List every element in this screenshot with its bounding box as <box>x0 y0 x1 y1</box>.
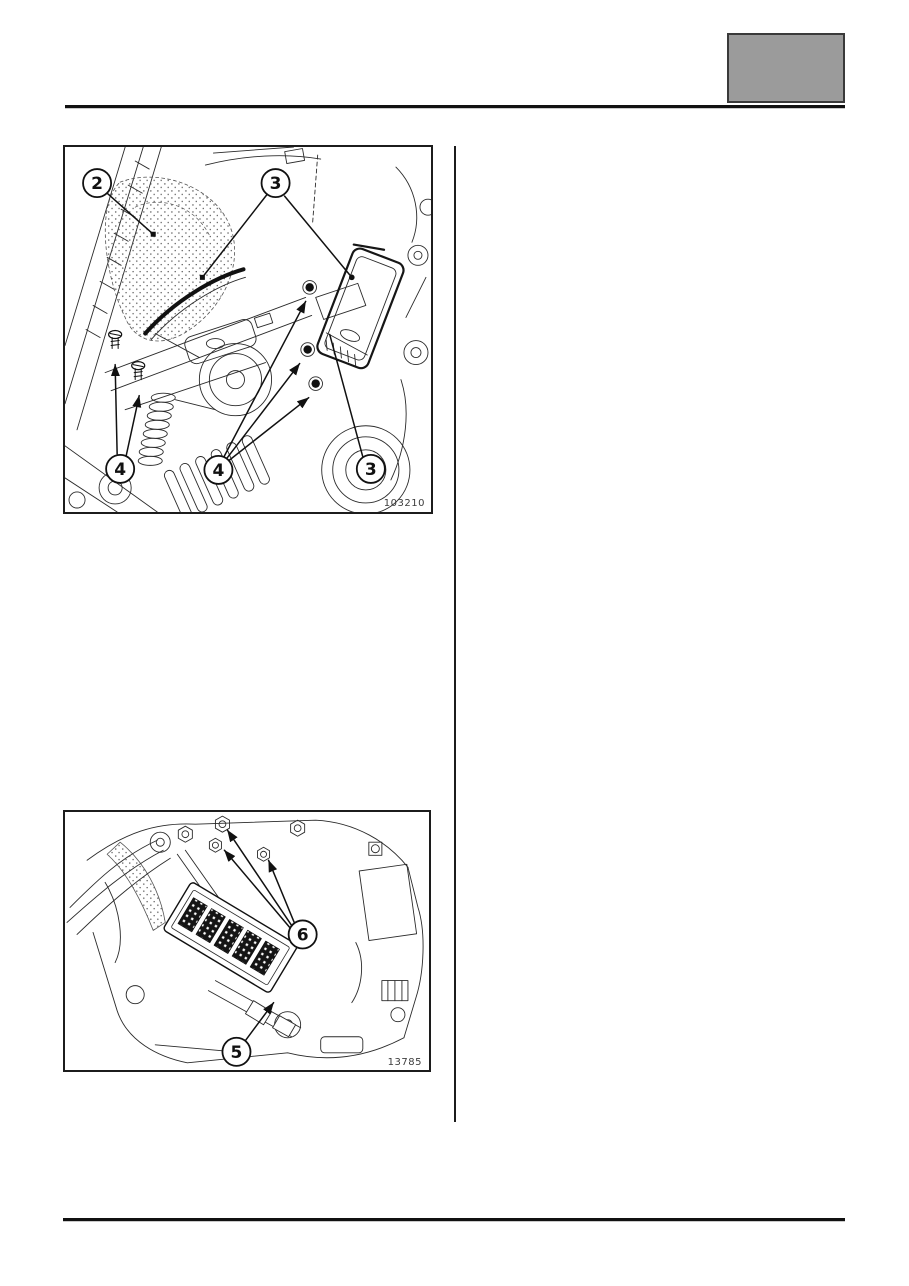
figure-engine-compartment: 2 3 3 4 <box>63 145 433 514</box>
callout-3-bottom: 3 <box>330 335 385 483</box>
section-tab-box <box>727 33 845 103</box>
corrugated-hose-art <box>138 393 175 465</box>
engine-illustration: 2 3 3 4 <box>65 147 431 512</box>
top-rule <box>65 105 845 108</box>
callout-4-label: 4 <box>212 461 224 481</box>
ecu-box-art <box>313 239 408 371</box>
bottom-rule <box>63 1218 845 1221</box>
screw-icon <box>109 331 122 349</box>
pulley-art <box>155 334 410 512</box>
callout-4-label: 4 <box>114 460 126 480</box>
leader-endpoint <box>349 275 355 281</box>
fuse-plate-art <box>163 881 299 993</box>
engine-mount-art <box>391 167 431 480</box>
column-divider <box>454 146 456 1122</box>
callout-3-label: 3 <box>270 174 282 194</box>
callout-5-label: 5 <box>231 1043 243 1063</box>
gearbox-illustration: 6 5 13785 <box>65 812 429 1070</box>
figure-gearbox: 6 5 13785 <box>63 810 431 1072</box>
air-duct-art <box>105 177 234 341</box>
leader-endpoint <box>151 232 156 237</box>
figure-number: 103210 <box>384 498 425 509</box>
callout-6-label: 6 <box>297 925 309 945</box>
callout-4-center: 4 <box>204 301 308 483</box>
leader-endpoint <box>200 275 205 280</box>
screw-icon <box>132 362 145 380</box>
figure-number: 13785 <box>388 1057 422 1068</box>
callout-3-label: 3 <box>365 460 377 480</box>
manual-page: 2 3 3 4 <box>0 0 909 1286</box>
callout-2-label: 2 <box>91 174 103 194</box>
bolt-icon <box>301 281 323 391</box>
